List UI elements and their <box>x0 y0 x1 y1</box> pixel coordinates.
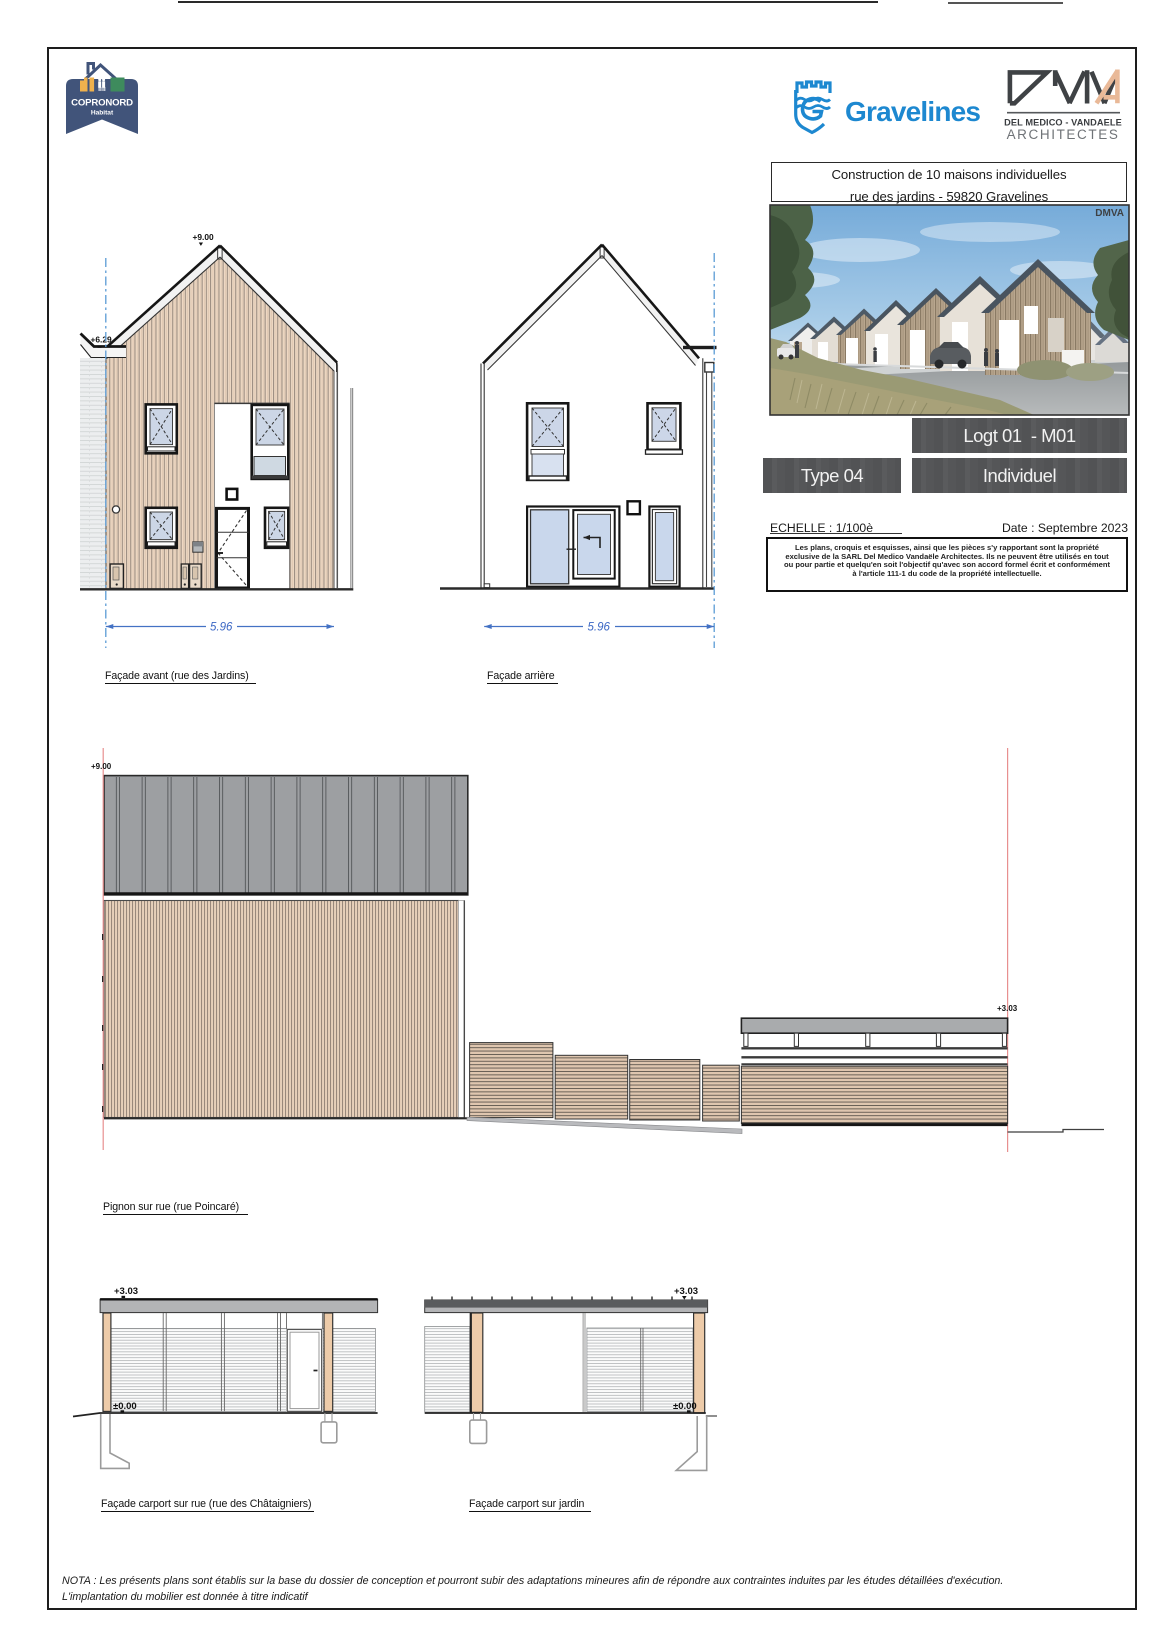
svg-text:Habitat: Habitat <box>91 110 114 117</box>
svg-text:+6.29: +6.29 <box>91 335 113 345</box>
svg-text:±0.00: ±0.00 <box>673 1401 697 1412</box>
svg-text:+3.03: +3.03 <box>674 1286 698 1297</box>
svg-text:ARCHITECTES: ARCHITECTES <box>1007 127 1120 142</box>
svg-text:5.96: 5.96 <box>210 622 233 634</box>
svg-text:Pignon sur rue (rue Poincaré): Pignon sur rue (rue Poincaré) <box>103 1201 239 1213</box>
svg-text:5.96: 5.96 <box>588 622 611 634</box>
svg-text:Façade carport sur jardin: Façade carport sur jardin <box>469 1498 584 1510</box>
svg-text:Gravelines: Gravelines <box>845 96 980 127</box>
svg-text:DMVA: DMVA <box>1095 208 1124 219</box>
svg-text:+9.00: +9.00 <box>193 232 215 242</box>
svg-text:COPRONORD: COPRONORD <box>71 98 133 109</box>
svg-text:Façade arrière: Façade arrière <box>487 670 555 682</box>
svg-text:+3.03: +3.03 <box>114 1286 138 1297</box>
svg-text:Façade carport sur rue (rue de: Façade carport sur rue (rue des Châtaign… <box>101 1498 311 1510</box>
svg-text:+3.03: +3.03 <box>997 1004 1018 1013</box>
svg-text:Façade avant (rue des Jardins): Façade avant (rue des Jardins) <box>105 670 249 682</box>
svg-text:±0.00: ±0.00 <box>113 1401 137 1412</box>
svg-text:DEL MEDICO - VANDAELE: DEL MEDICO - VANDAELE <box>1004 118 1122 128</box>
svg-text:+9.00: +9.00 <box>91 762 112 771</box>
